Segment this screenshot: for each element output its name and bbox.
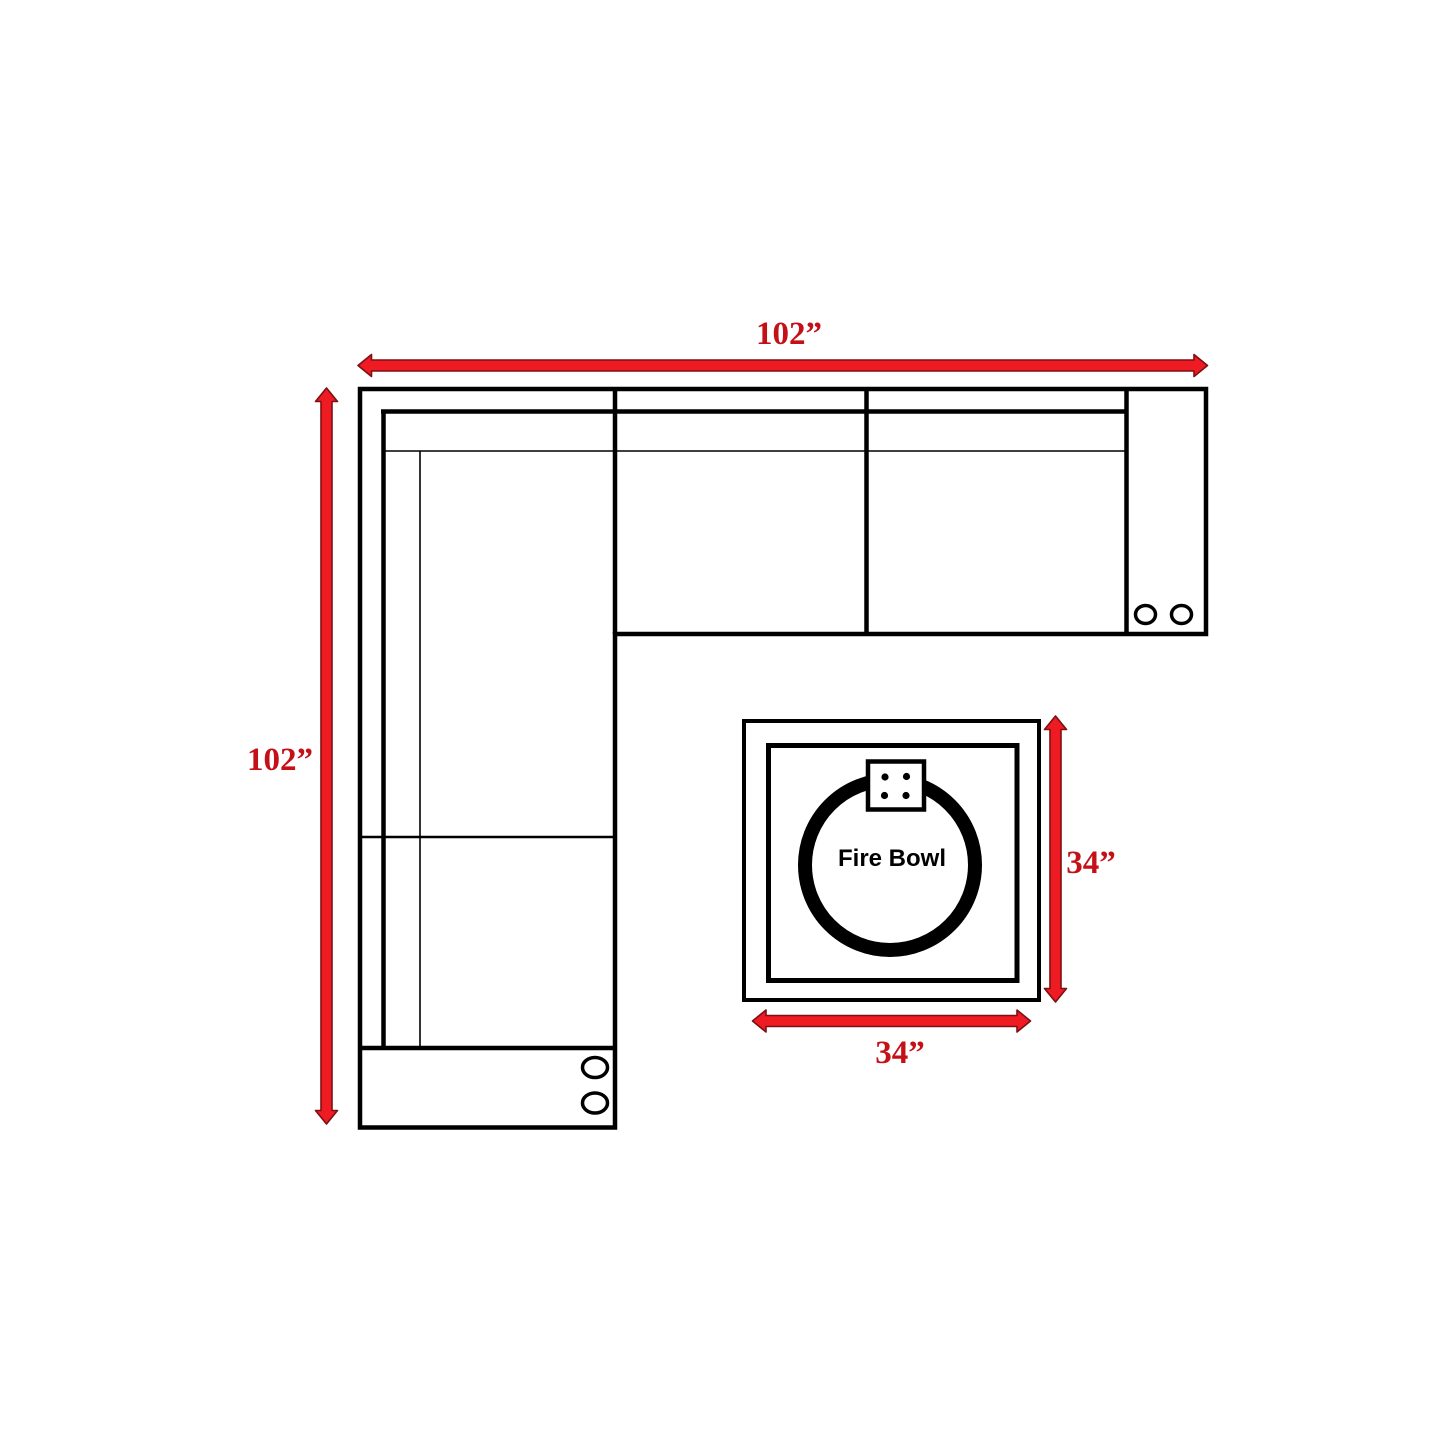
svg-text:102”: 102” [756, 316, 822, 352]
svg-text:102”: 102” [247, 742, 313, 778]
svg-text:Fire Bowl: Fire Bowl [838, 845, 946, 872]
svg-text:34”: 34” [875, 1035, 925, 1071]
svg-text:34”: 34” [1066, 845, 1116, 881]
